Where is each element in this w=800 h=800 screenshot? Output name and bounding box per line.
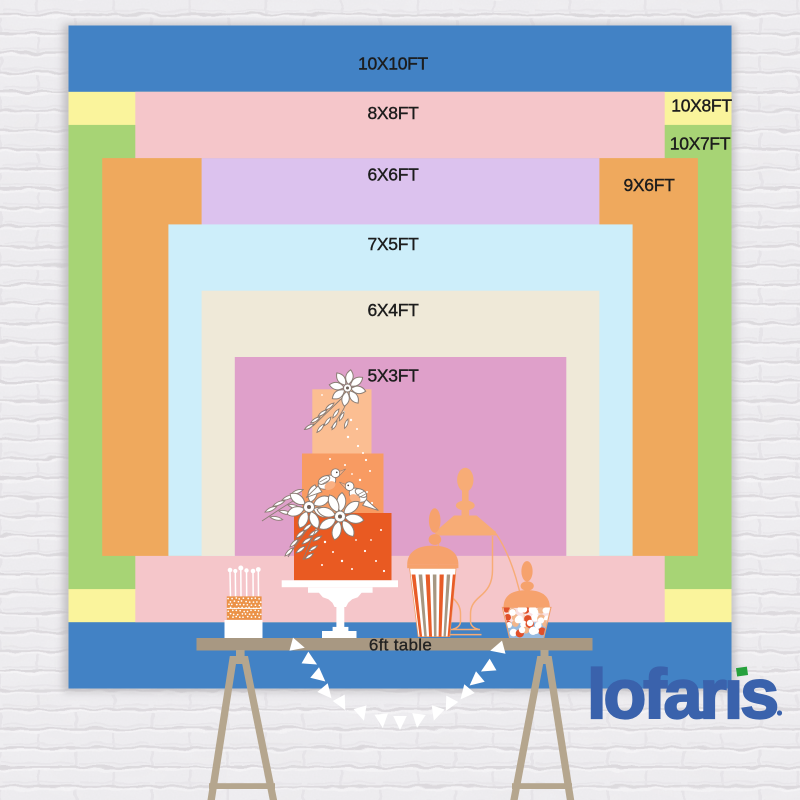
svg-text:8X8FT: 8X8FT	[367, 103, 419, 123]
svg-text:7X5FT: 7X5FT	[367, 234, 419, 254]
svg-text:10X8FT: 10X8FT	[671, 96, 732, 116]
svg-text:6ft table: 6ft table	[369, 636, 432, 655]
svg-text:lofarıs: lofarıs	[587, 655, 777, 733]
svg-text:10X7FT: 10X7FT	[670, 134, 731, 154]
svg-text:5X3FT: 5X3FT	[367, 366, 419, 386]
svg-text:6X4FT: 6X4FT	[367, 300, 419, 320]
svg-text:10X10FT: 10X10FT	[358, 54, 428, 74]
svg-text:9X6FT: 9X6FT	[623, 175, 675, 195]
svg-text:6X6FT: 6X6FT	[367, 165, 419, 185]
